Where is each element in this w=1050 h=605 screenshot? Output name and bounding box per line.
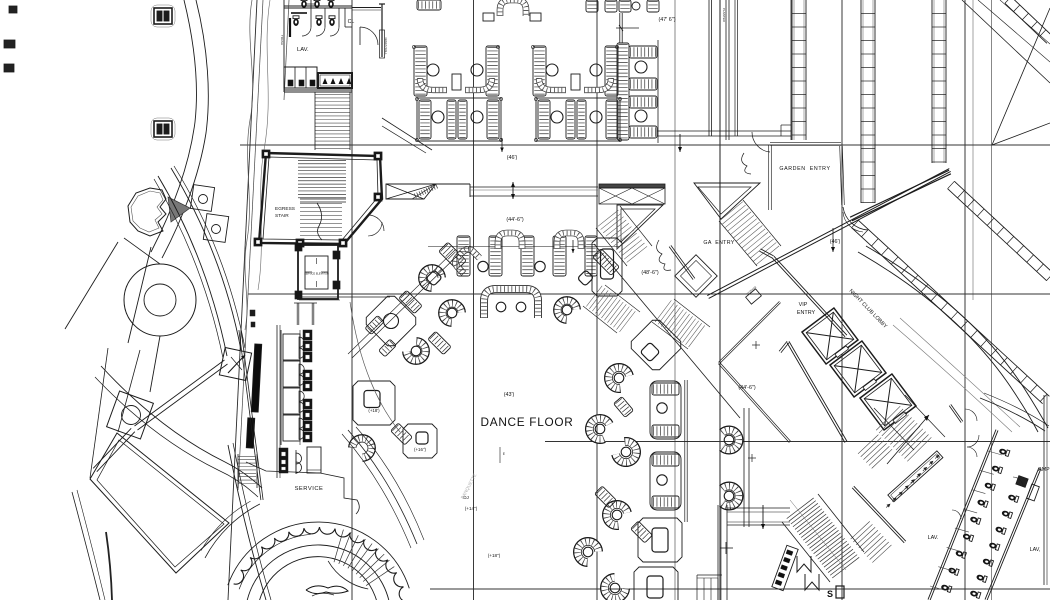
svg-text:GREEN WALL: GREEN WALL xyxy=(384,38,388,55)
svg-text:(+18'): (+18') xyxy=(368,408,380,413)
svg-text:LAV.: LAV. xyxy=(297,47,309,53)
svg-text:SERVICE: SERVICE xyxy=(295,486,324,492)
svg-text:SERVICE ELEVATOR: SERVICE ELEVATOR xyxy=(304,273,329,276)
svg-text:STAIR: STAIR xyxy=(275,213,289,219)
svg-text:GA ENTRY: GA ENTRY xyxy=(703,240,734,246)
svg-text:ENTRY: ENTRY xyxy=(797,310,816,316)
svg-text:CL: CL xyxy=(348,19,355,25)
svg-text:S: S xyxy=(827,589,833,599)
svg-text:(46'): (46') xyxy=(507,155,518,161)
svg-text:DANCE FLOOR: DANCE FLOOR xyxy=(481,415,574,429)
svg-text:(48'-6"): (48'-6") xyxy=(641,270,659,276)
svg-text:(+14"): (+14") xyxy=(465,506,478,511)
svg-text:GARDEN ENTRY: GARDEN ENTRY xyxy=(779,166,830,172)
svg-text:LAV,: LAV, xyxy=(1030,547,1041,553)
svg-text:E: E xyxy=(503,452,505,456)
svg-text:(46'): (46') xyxy=(830,239,841,245)
svg-text:EGRESS: EGRESS xyxy=(275,206,295,212)
svg-text:(47' 6"): (47' 6") xyxy=(658,17,675,23)
svg-text:(44'-6"): (44'-6") xyxy=(506,217,524,223)
svg-text:PLANTER: PLANTER xyxy=(722,8,726,23)
svg-text:VIP: VIP xyxy=(799,302,808,308)
svg-text:LAV.: LAV. xyxy=(928,535,939,541)
svg-text:TRASH: TRASH xyxy=(280,35,284,45)
svg-text:(43'): (43') xyxy=(504,392,515,398)
svg-text:(+16"): (+16") xyxy=(414,447,426,452)
svg-text:(+18"): (+18") xyxy=(488,553,501,558)
